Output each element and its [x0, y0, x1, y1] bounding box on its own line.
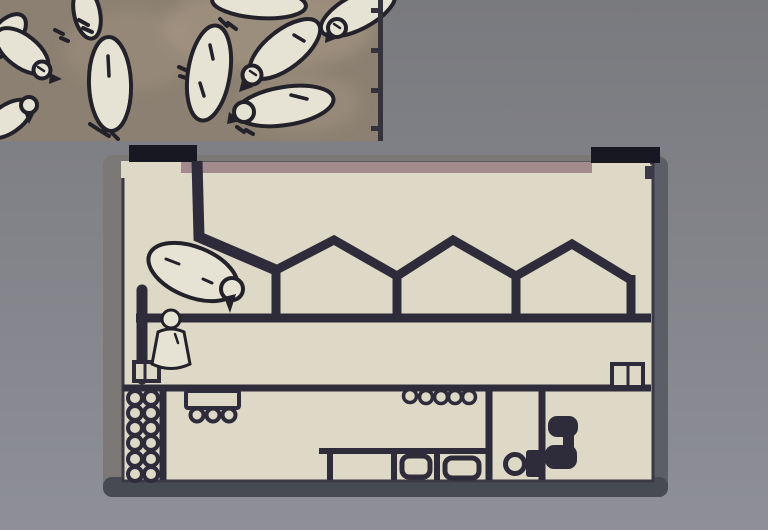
jar-ring	[449, 391, 462, 404]
worker-head	[162, 310, 180, 328]
delivery-truck	[186, 391, 239, 422]
outlet-hatch-cap	[591, 147, 660, 163]
truck-body	[186, 391, 239, 408]
truck-wheel	[223, 409, 236, 422]
fence-post	[371, 8, 379, 13]
can-ring	[128, 436, 142, 450]
can-ring	[144, 391, 158, 405]
outlet-hatch-opening	[592, 161, 650, 178]
goose-wing-mark	[108, 56, 109, 76]
goose-head	[328, 19, 346, 37]
goose-feet-mark	[61, 38, 68, 41]
fence-post	[371, 88, 379, 93]
outlet-hatch-notch	[645, 166, 653, 179]
worker-body	[152, 329, 190, 369]
can-ring	[128, 467, 142, 481]
seat-figure-block	[545, 445, 577, 469]
can-ring	[144, 452, 158, 466]
truck-wheel	[191, 409, 204, 422]
can-ring	[128, 421, 142, 435]
goose-head	[21, 97, 37, 113]
fence-post	[371, 48, 379, 53]
goose-body	[87, 36, 132, 131]
fence-post	[371, 126, 379, 131]
can-ring	[128, 406, 142, 420]
scene-svg	[0, 0, 768, 530]
fence-line	[378, 0, 383, 141]
control-box	[612, 364, 643, 387]
operator-body	[526, 450, 544, 477]
jar-ring	[404, 390, 417, 403]
can-ring	[144, 436, 158, 450]
animation-frame	[0, 0, 768, 530]
factory-panel	[103, 145, 668, 497]
jar-ring	[435, 391, 448, 404]
goose-pen	[0, 0, 402, 146]
can-ring	[128, 391, 142, 405]
can-ring	[144, 421, 158, 435]
can-ring	[144, 467, 158, 481]
can-ring	[128, 452, 142, 466]
can-ring	[144, 406, 158, 420]
operator-head-ring	[506, 455, 525, 474]
truck-wheel	[207, 409, 220, 422]
jar-ring	[420, 391, 433, 404]
jar-ring	[463, 391, 476, 404]
jar-row	[404, 390, 476, 404]
intake-hatch-cap	[129, 145, 197, 162]
intake-hatch-opening	[121, 161, 181, 178]
goose-head	[243, 66, 262, 85]
